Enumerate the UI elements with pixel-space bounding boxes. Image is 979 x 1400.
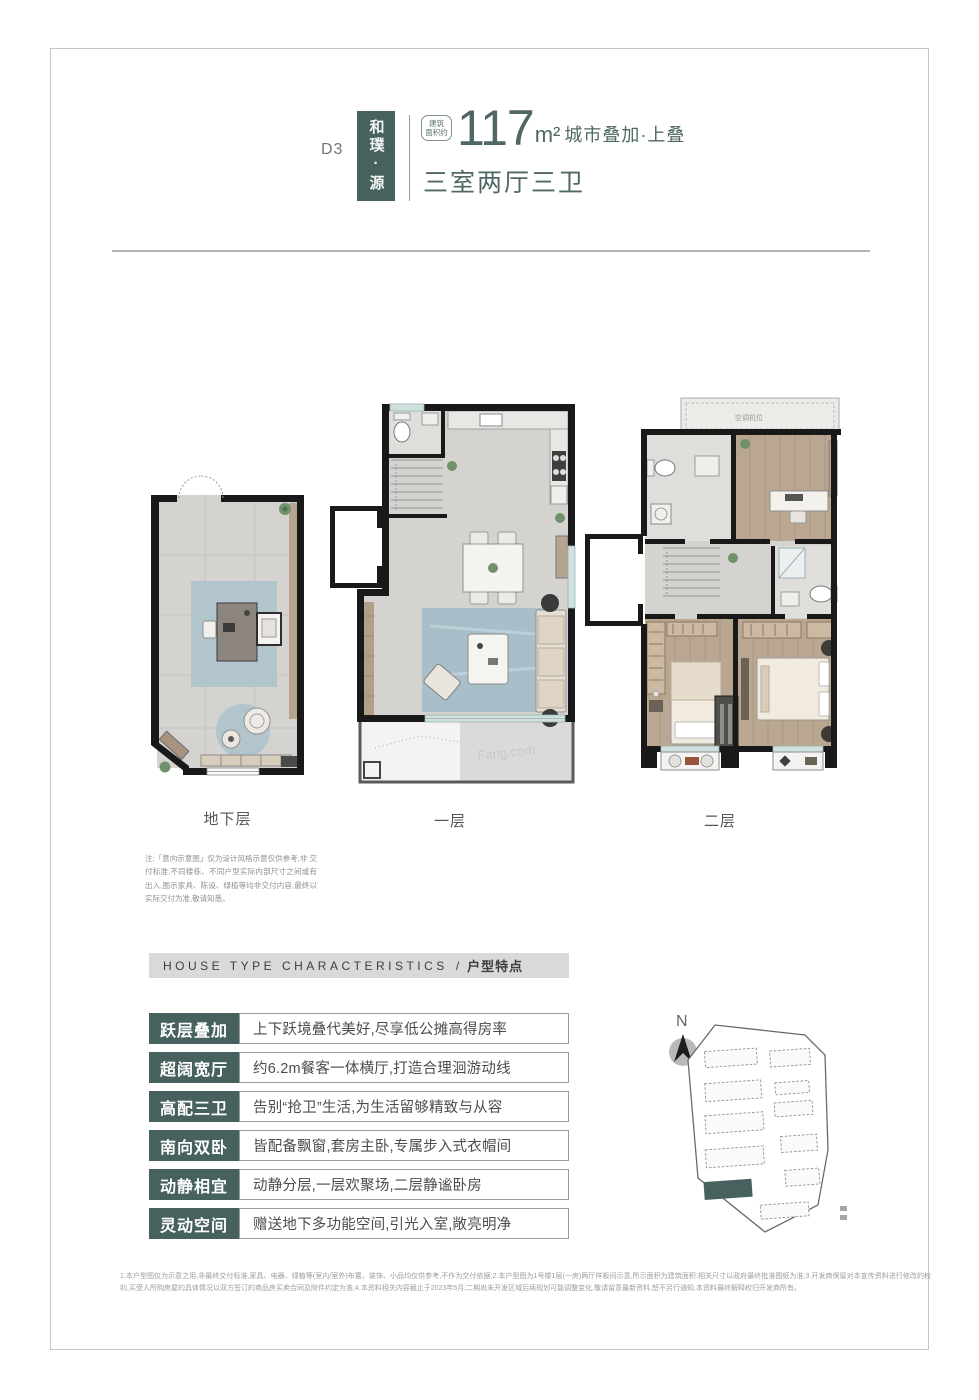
- feature-label: 灵动空间: [149, 1208, 239, 1239]
- area-category: 城市叠加·上叠: [564, 121, 685, 147]
- floor-label-basement: 地下层: [185, 808, 270, 829]
- room-layout: 三室两厅三卫: [423, 163, 585, 199]
- floor1-stair-shaft: [330, 506, 382, 588]
- feature-row: 超阔宽厅 约6.2m餐客一体横厅,打造合理洄游动线: [149, 1052, 569, 1083]
- feature-description: 约6.2m餐客一体横厅,打造合理洄游动线: [239, 1052, 569, 1083]
- feature-description: 动静分层,一层欢聚场,二层静谧卧房: [239, 1169, 569, 1200]
- area-badge: 建筑 面积约: [421, 115, 452, 141]
- section-title-divider: /: [456, 959, 459, 973]
- feature-description: 告别“抢卫”生活,为生活留够精致与从容: [239, 1091, 569, 1122]
- feature-row: 高配三卫 告别“抢卫”生活,为生活留够精致与从容: [149, 1091, 569, 1122]
- north-label: N: [676, 1013, 688, 1030]
- header-vertical-divider: [409, 115, 410, 201]
- feature-row: 动静相宜 动静分层,一层欢聚场,二层静谧卧房: [149, 1169, 569, 1200]
- unit-code: D3: [321, 141, 343, 159]
- basement-door-arc: [179, 476, 223, 498]
- project-logo-text: 和璞·源: [369, 119, 384, 193]
- feature-row: 跃层叠加 上下跃境叠代美好,尽享低公摊高得房率: [149, 1013, 569, 1044]
- feature-row: 灵动空间 赠送地下多功能空间,引光入室,敞亮明净: [149, 1208, 569, 1239]
- feature-description: 皆配备飘窗,套房主卧,专属步入式衣帽间: [239, 1130, 569, 1161]
- section-title-en: HOUSE TYPE CHARACTERISTICS: [163, 959, 448, 973]
- roof-label: 空调机位: [735, 413, 763, 422]
- floor-label-first: 一层: [415, 810, 485, 831]
- project-logo: 和璞·源: [357, 111, 395, 201]
- header-divider: [112, 250, 870, 252]
- first-floor-plan: Fang.com: [330, 396, 580, 801]
- feature-label: 高配三卫: [149, 1091, 239, 1122]
- section-header-bar: HOUSE TYPE CHARACTERISTICS / 户型特点: [149, 953, 569, 978]
- feature-description: 上下跃境叠代美好,尽享低公摊高得房率: [239, 1013, 569, 1044]
- area-row: 建筑 面积约 117 m² 城市叠加·上叠: [421, 105, 685, 151]
- plan-disclaimer-note: 注:「意向示意图」仅为设计风格示意仅供参考,非 交付标准,不同楼栋、不同户型实际…: [145, 852, 317, 905]
- area-value: 117: [457, 105, 534, 151]
- feature-label: 南向双卧: [149, 1130, 239, 1161]
- floor-label-second: 二层: [685, 810, 755, 831]
- feature-row: 南向双卧 皆配备飘窗,套房主卧,专属步入式衣帽间: [149, 1130, 569, 1161]
- basement-window: [207, 768, 259, 775]
- feature-description: 赠送地下多功能空间,引光入室,敞亮明净: [239, 1208, 569, 1239]
- feature-list: 跃层叠加 上下跃境叠代美好,尽享低公摊高得房率 超阔宽厅 约6.2m餐客一体横厅…: [149, 1013, 569, 1247]
- highlighted-building: [703, 1179, 752, 1200]
- map-road-label: [840, 1206, 847, 1220]
- section-title-zh: 户型特点: [467, 956, 523, 975]
- floor1-floor: [360, 411, 572, 782]
- feature-label: 动静相宜: [149, 1169, 239, 1200]
- floor2-roof: 空调机位: [681, 398, 839, 434]
- feature-label: 超阔宽厅: [149, 1052, 239, 1083]
- footer-disclaimer: 1.本户型图仅为示意之用,非最终交付标准,家具、电器、绿植等(室内/室外)布置、…: [120, 1271, 931, 1295]
- floor2-stair-shaft: [585, 534, 643, 626]
- site-map: N: [650, 1000, 930, 1265]
- feature-label: 跃层叠加: [149, 1013, 239, 1044]
- basement-floor-plan: [145, 455, 315, 795]
- area-unit: m²: [535, 122, 561, 148]
- second-floor-plan: 空调机位: [585, 396, 865, 796]
